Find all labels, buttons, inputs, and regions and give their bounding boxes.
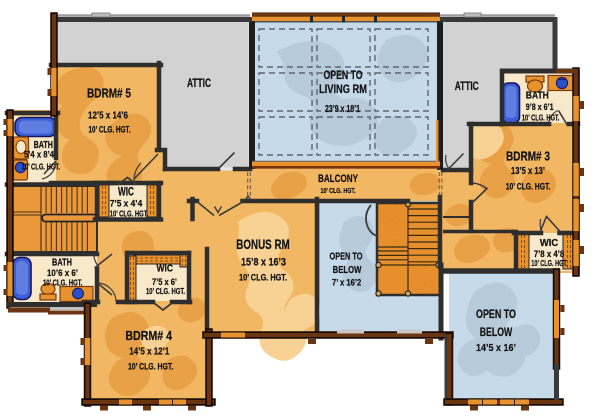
- svg-text:10’ CLG. HGT.: 10’ CLG. HGT.: [239, 273, 287, 283]
- svg-text:10’ CLG. HGT.: 10’ CLG. HGT.: [506, 182, 551, 192]
- svg-text:10’ CLG. HGT.: 10’ CLG. HGT.: [43, 279, 83, 288]
- svg-text:10’ CLG. HGT.: 10’ CLG. HGT.: [22, 163, 60, 172]
- svg-text:10’ CLG. HGT.: 10’ CLG. HGT.: [146, 287, 185, 296]
- svg-text:10’ CLG. HGT.: 10’ CLG. HGT.: [321, 186, 356, 195]
- svg-text:7’5 x 4’4: 7’5 x 4’4: [110, 199, 143, 210]
- svg-text:BALCONY: BALCONY: [318, 173, 358, 185]
- svg-text:10’ CLG. HGT.: 10’ CLG. HGT.: [110, 210, 149, 219]
- svg-text:LIVING RM: LIVING RM: [319, 84, 367, 96]
- svg-text:7’ x 16’2: 7’ x 16’2: [332, 278, 361, 288]
- svg-text:15’8 x 16’3: 15’8 x 16’3: [241, 257, 286, 269]
- svg-text:BONUS RM: BONUS RM: [236, 237, 289, 252]
- svg-text:BDRM# 3: BDRM# 3: [506, 149, 550, 164]
- svg-text:BDRM# 4: BDRM# 4: [125, 328, 172, 343]
- svg-text:BDRM# 5: BDRM# 5: [87, 86, 131, 101]
- svg-text:BATH: BATH: [52, 257, 72, 269]
- svg-text:10’6 x 6’: 10’6 x 6’: [47, 268, 78, 279]
- svg-text:WIC: WIC: [157, 263, 174, 275]
- svg-text:5’4 x 8’4: 5’4 x 8’4: [24, 150, 55, 161]
- svg-text:BELOW: BELOW: [333, 264, 362, 276]
- svg-text:WIC: WIC: [118, 185, 134, 199]
- svg-text:9’8 x 6’1: 9’8 x 6’1: [526, 102, 555, 113]
- svg-text:10’ CLG. HGT.: 10’ CLG. HGT.: [522, 114, 560, 123]
- svg-text:14’5 x 12’1: 14’5 x 12’1: [129, 347, 169, 358]
- svg-text:10’ CLG. HGT.: 10’ CLG. HGT.: [128, 361, 173, 371]
- svg-text:12’5 x 14’6: 12’5 x 14’6: [88, 111, 128, 122]
- svg-text:BATH: BATH: [526, 90, 549, 102]
- svg-text:OPEN TO: OPEN TO: [324, 70, 363, 82]
- svg-text:14’5 x 16’: 14’5 x 16’: [476, 342, 516, 354]
- svg-text:ATTIC: ATTIC: [187, 78, 211, 90]
- svg-text:10’ CLG. HGT.: 10’ CLG. HGT.: [89, 125, 131, 135]
- svg-text:10’ CLG. HGT.: 10’ CLG. HGT.: [531, 259, 568, 268]
- svg-text:BELOW: BELOW: [480, 325, 513, 339]
- svg-text:23’9 x 18’1: 23’9 x 18’1: [325, 104, 360, 115]
- svg-text:13’5 x 13’: 13’5 x 13’: [511, 166, 545, 177]
- svg-text:ATTIC: ATTIC: [455, 81, 479, 93]
- svg-text:OPEN TO: OPEN TO: [476, 307, 516, 321]
- svg-text:WIC: WIC: [540, 237, 559, 249]
- svg-text:OPEN TO: OPEN TO: [330, 250, 363, 262]
